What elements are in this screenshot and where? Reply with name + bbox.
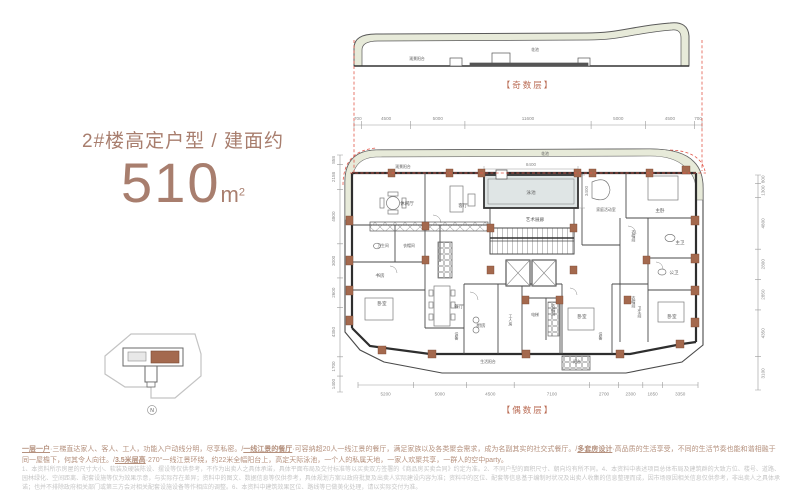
even-floor-plan: 泳池 8400 3400 [331, 40, 766, 415]
selling-point-head: 一层一户 [22, 446, 50, 453]
room-label-service-balcony: 生活阳台 [480, 359, 496, 364]
area-unit: m [220, 182, 238, 207]
room-label-cloakroom: 衣帽间 [551, 304, 556, 317]
room-label-art-gallery: 艺术展廊 [526, 216, 545, 223]
dim-label: 2300 [625, 392, 636, 397]
room-label-view-balcony: 观景阳台 [395, 164, 411, 169]
stair-core [490, 228, 574, 254]
disclaimer-paragraph: 1、本资料所示房屋的尺寸大小、软装及硬装陈设、摆设等仅供参考，不作为出卖人之具体… [22, 466, 780, 493]
dim-label: 700 [694, 116, 702, 121]
dim-label: 1400 [331, 379, 336, 390]
even-dimension-labels-right: 800 1300 4800 2800 2850 4350 3100 [761, 175, 766, 378]
dim-label: 11600 [522, 116, 535, 121]
dim-label: 4350 [761, 328, 766, 339]
room-label-kitchen: 厨房 [476, 322, 486, 329]
dim-label: 4500 [381, 116, 392, 121]
dim-label: 1700 [331, 361, 336, 372]
dim-label: 2700 [599, 392, 610, 397]
selling-point-head: 3.5米层高 [115, 457, 146, 464]
selling-point-head: 多套房设计 [577, 446, 612, 453]
dim-label: 1300 [761, 185, 766, 196]
room-label-bedroom: 卧室 [667, 313, 677, 320]
dim-label: 2850 [761, 289, 766, 300]
headline: 2#楼高定户型 / 建面约 510m2 [78, 126, 288, 211]
headline-text: 2#楼高定户型 / 建面约 [78, 126, 288, 153]
site-plan-thumbnail: N [95, 326, 210, 418]
dim-label: 1850 [647, 392, 658, 397]
room-label-bedroom: 卧室 [377, 300, 387, 307]
room-label-bathroom: 卫生间 [637, 306, 642, 318]
dim-label: 3100 [761, 368, 766, 379]
selling-points-paragraph: 一层一户·三梯直达家人、客人、工人，功能入户动线分明，尽享私密。/一线江景的餐厅… [22, 445, 780, 467]
room-label-elevator: 电梯 [531, 312, 539, 317]
room-label-equipment: 设备 [598, 332, 603, 341]
room-label-flower-bed: 花池 [541, 151, 549, 156]
room-label-maid-room: 工人房 [508, 314, 513, 326]
dim-label: 5000 [435, 392, 446, 397]
room-label-leisure-hall: 休闲厅 [400, 200, 414, 207]
room-label-living-room: 客厅 [458, 202, 468, 209]
pool-width-dim: 8400 [526, 162, 537, 167]
odd-dimension-labels: 700 4500 5000 11600 5000 4500 700 [354, 116, 702, 121]
selling-point-body: ·三梯直达家人、客人、工人，功能入户动线分明，尽享私密。/ [50, 446, 243, 453]
room-label-study: 书房 [375, 272, 385, 279]
odd-dimension-line [354, 121, 702, 129]
pool-height-dim: 3400 [584, 185, 589, 196]
room-label-master-bedroom: 主卧 [655, 207, 665, 214]
selling-point-head: 一线江景的餐厅 [243, 446, 292, 453]
room-label-cloakroom: 衣帽间 [403, 243, 415, 248]
room-label-family-room: 家庭活动室 [596, 207, 616, 212]
brochure-page: 2#楼高定户型 / 建面约 510m2 N [0, 0, 800, 498]
room-label-balcony: 阳台 [573, 359, 581, 364]
dim-label: 4350 [331, 327, 336, 338]
room-label-bedroom: 卧室 [577, 313, 587, 320]
room-label-guest-bath: 公卫 [669, 270, 679, 275]
north-label: N [150, 408, 154, 414]
dim-label: 800 [761, 175, 766, 183]
dim-label: 5200 [380, 392, 391, 397]
dim-label: 4800 [761, 218, 766, 229]
room-label-cloakroom: 衣帽间 [631, 296, 636, 309]
odd-floor-plan: 花池 观景阳台 【奇数层】 700 4500 5000 11600 5000 4… [354, 23, 702, 129]
dim-label: 858 [331, 156, 336, 164]
odd-flower-bed-label: 花池 [531, 47, 539, 52]
even-dimension-labels-bottom: 5200 5000 4500 7100 2700 2300 1850 3350 [380, 392, 685, 397]
north-compass: N [148, 406, 157, 415]
dim-label: 3000 [331, 255, 336, 266]
floor-plan: 花池 观景阳台 【奇数层】 700 4500 5000 11600 5000 4… [330, 20, 770, 440]
area-number: 510 [121, 151, 220, 214]
dim-label: 2800 [761, 259, 766, 270]
even-dimension-line-left [337, 155, 343, 392]
room-label-master-bath: 主卫 [675, 239, 685, 245]
dim-label: 2158 [331, 171, 336, 182]
odd-floor-caption: 【奇数层】 [502, 80, 555, 90]
room-label-bathroom: 卫生间 [377, 243, 389, 248]
room-label-dining-room: 餐厅 [454, 303, 464, 310]
selling-point-body: ·270°一线江景环绕，约22米全幅阳台上，高定天际泳池，一个人的私属天地，一家… [146, 457, 508, 464]
headline-area: 510m2 [78, 155, 288, 211]
dim-label: 700 [354, 116, 362, 121]
swimming-pool: 泳池 8400 3400 [484, 162, 589, 208]
dim-label: 3350 [675, 392, 686, 397]
even-dimension-line-bottom [358, 382, 698, 388]
even-floor-caption: 【偶数层】 [502, 405, 555, 415]
even-dimension-line-right [755, 175, 761, 390]
pool-steps [496, 170, 507, 179]
room-label-pool: 泳池 [526, 189, 536, 196]
dim-label: 5000 [433, 116, 444, 121]
dim-label: 2600 [331, 287, 336, 298]
odd-view-balcony-label: 观景阳台 [409, 56, 425, 61]
dim-label: 4800 [331, 211, 336, 222]
dim-label: 7100 [547, 392, 558, 397]
selling-point-body: ·可容纳超20人一线江景的餐厅，满足家族以及各类聚会需求，成为名副其实的社交式餐… [292, 446, 577, 453]
area-sup: 2 [239, 187, 245, 199]
even-dimension-labels-left: 858 2158 4800 3000 2600 4350 1700 1400 [331, 156, 336, 390]
dim-label: 5000 [613, 116, 624, 121]
dim-label: 4500 [485, 392, 496, 397]
dim-label: 4500 [665, 116, 676, 121]
room-label-equipment: 设备 [454, 332, 459, 341]
room-label-cloakroom: 衣帽间 [631, 230, 636, 243]
